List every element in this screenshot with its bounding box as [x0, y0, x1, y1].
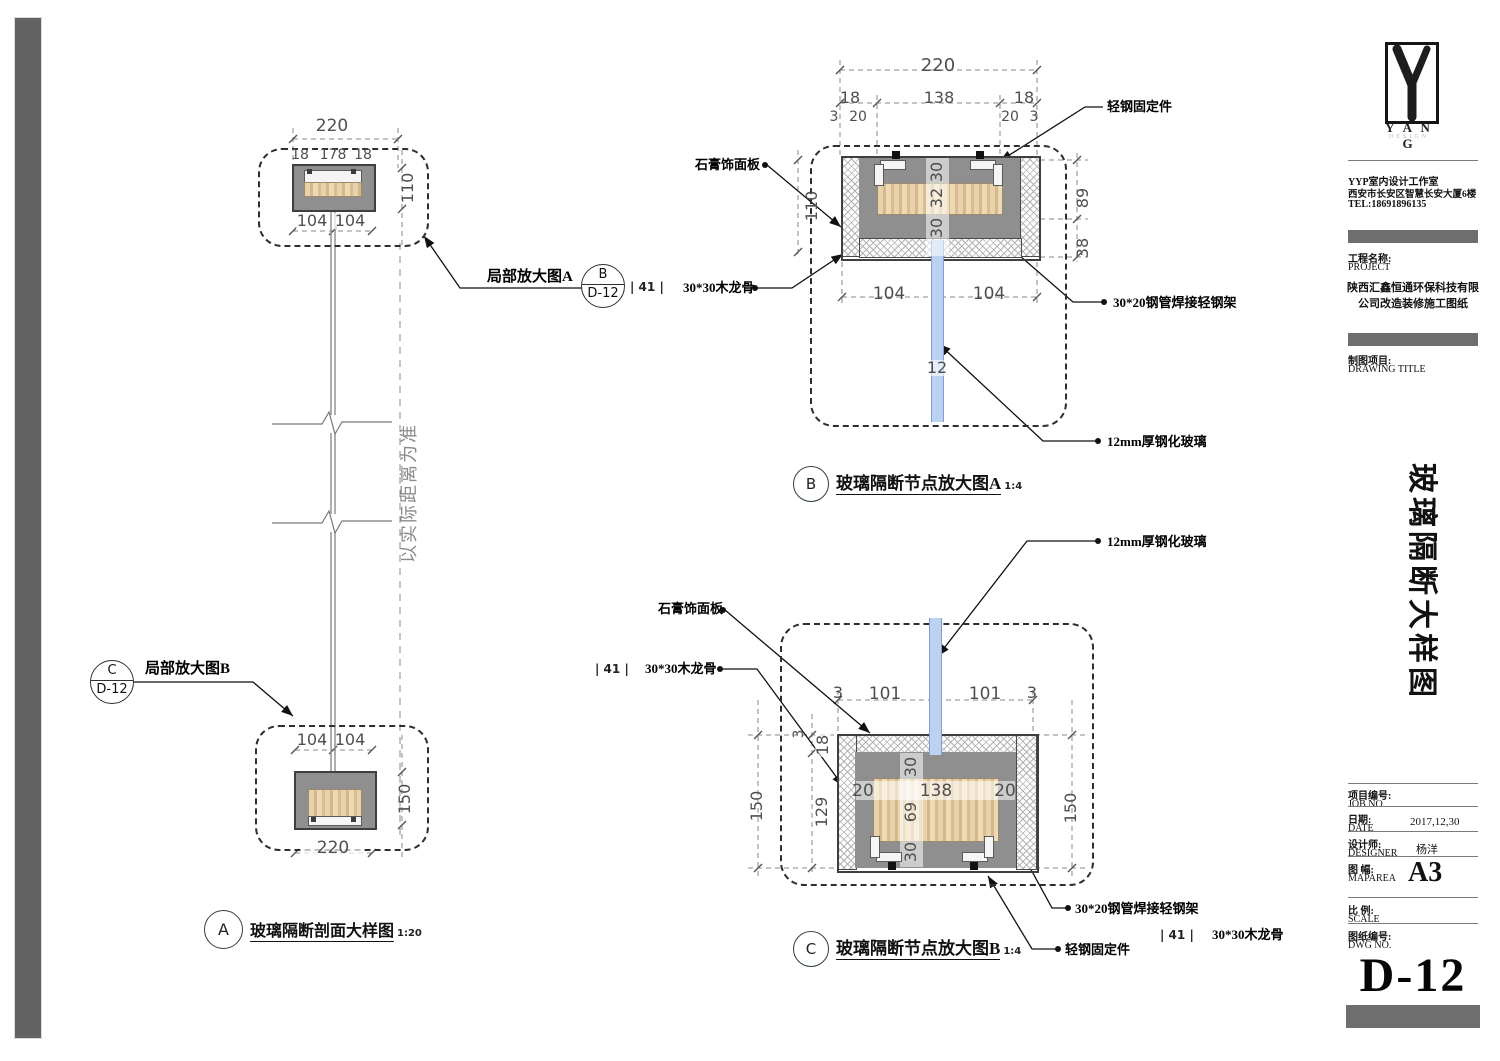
c-dim-150-left: 150: [749, 784, 765, 828]
b-label-steel-frame: 30*20钢管焊接轻钢架: [1113, 295, 1237, 310]
detail-b-title: 玻璃隔断节点放大图A1:4: [836, 469, 1022, 494]
detail-a-scale: 1:20: [397, 928, 422, 939]
a-dim-18-right: 18: [352, 148, 374, 162]
c-marker-right: | 41 |: [1160, 928, 1194, 942]
tb-row-line-5: [1348, 923, 1478, 924]
a-dim-220-bottom: 220: [303, 840, 363, 856]
c-fixing-anchor-left: [888, 862, 896, 870]
c-dim-101r: 101: [966, 686, 1004, 702]
a-dim-18-left: 18: [289, 148, 311, 162]
studio-tel: TEL:18691896135: [1348, 199, 1426, 210]
c-label-glass: 12mm厚钢化玻璃: [1107, 534, 1207, 549]
jobno-label-en: JOB NO.: [1348, 799, 1385, 810]
c-label-gypsum: 石膏饰面板: [658, 601, 723, 616]
detail-a-title-text: 玻璃隔断剖面大样图: [250, 923, 394, 942]
studio-address: 西安市长安区智慧长安大厦6楼: [1348, 186, 1476, 200]
tb-row-line-top: [1348, 783, 1478, 784]
detail-c-scale: 1:4: [1003, 946, 1021, 957]
detail-b-glass-panel: [931, 240, 944, 422]
b-dim-110: 110: [804, 186, 820, 226]
detail-a-title-circle: A: [204, 910, 243, 949]
a-dim-104-right: 104: [334, 213, 366, 229]
a-dim-220-top: 220: [302, 118, 362, 134]
date-value: 2017,12,30: [1410, 816, 1460, 828]
c-label-joist-left: 30*30木龙骨: [645, 661, 717, 676]
b-dim-3l: 3: [828, 110, 840, 124]
b-dim-138: 138: [918, 90, 960, 106]
detail-c-title: 玻璃隔断节点放大图B1:4: [836, 934, 1021, 959]
c-fixing-anchor-right: [970, 862, 978, 870]
detail-c-title-circle: C: [793, 931, 829, 967]
c-dim-20r: 20: [992, 783, 1018, 799]
b-dim-18l: 18: [838, 90, 862, 106]
b-label-fixing: 轻钢固定件: [1107, 99, 1172, 114]
b-dim-3r: 3: [1028, 110, 1040, 124]
b-label-gypsum: 石膏饰面板: [695, 157, 760, 172]
a-callout-top-label: 局部放大图A: [487, 270, 573, 285]
c-marker-left: | 41 |: [595, 662, 629, 676]
a-top-fixing-right: [351, 169, 356, 174]
c-dim-69: 69: [903, 797, 919, 827]
project-name-line1: 陕西汇鑫恒通环保科技有限: [1346, 280, 1480, 296]
c-dim-129: 129: [814, 790, 830, 834]
drawing-title-label-en: DRAWING TITLE: [1348, 364, 1426, 375]
a-dim-104-bot-right: 104: [334, 732, 366, 748]
c-label-steel-frame: 30*20钢管焊接轻钢架: [1075, 901, 1199, 916]
detail-c-letter: C: [806, 940, 816, 958]
b-dim-104r: 104: [972, 286, 1006, 302]
a-bottom-fixing-left: [311, 817, 316, 822]
a-dim-104-bot-left: 104: [296, 732, 328, 748]
bubble-detail-letter: C: [91, 661, 133, 680]
c-label-fixing: 轻钢固定件: [1065, 942, 1130, 957]
c-fixing-bracket-right-v: [984, 836, 994, 858]
titleblock-graybar-1: [1348, 230, 1478, 243]
c-dim-3-side: 3: [792, 724, 806, 744]
bubble-sheet-ref: D-12: [91, 680, 133, 699]
titleblock-divider-1: [1348, 160, 1478, 161]
drawing-sheet: 220 18 178 18 110 104 104 以实际距离为准 局部放大图A…: [0, 0, 1500, 1061]
b-dim-30-bottom: 30: [929, 215, 945, 241]
b-fixing-bracket-right-v: [993, 164, 1003, 186]
yang-logo: [1385, 42, 1439, 124]
b-dim-20l: 20: [847, 110, 869, 124]
titleblock-graybar-3: [1346, 1005, 1480, 1028]
a-callout-top-bubble: B D-12: [581, 264, 625, 308]
a-dim-110: 110: [400, 168, 416, 208]
a-top-wood-blocking: [304, 182, 362, 197]
a-bottom-wood-blocking: [308, 789, 362, 818]
detail-c-glass-panel: [929, 618, 942, 755]
b-dim-89: 89: [1075, 178, 1091, 218]
left-edge-bar: [14, 17, 42, 1039]
a-dim-104-left: 104: [296, 213, 328, 229]
detail-a-title: 玻璃隔断剖面大样图1:20: [250, 917, 422, 941]
yang-logo-sub: DESIGN: [1378, 134, 1440, 140]
c-dim-30-top: 30: [903, 754, 919, 780]
project-name-line2: 公司改造装修施工图纸: [1346, 296, 1480, 312]
c-dim-3r: 3: [1026, 686, 1038, 700]
b-label-joist: 30*30木龙骨: [683, 280, 755, 295]
maparea-label-en: MAPAREA: [1348, 873, 1396, 884]
c-dim-138: 138: [913, 783, 959, 799]
c-dim-101l: 101: [866, 686, 904, 702]
b-label-glass: 12mm厚钢化玻璃: [1107, 434, 1207, 449]
titleblock: Y A N G DESIGN YYP室内设计工作室 西安市长安区智慧长安大厦6楼…: [1340, 0, 1500, 1061]
tb-row-line-1: [1348, 806, 1478, 807]
c-dim-18: 18: [815, 733, 831, 757]
detail-a-letter: A: [218, 920, 229, 939]
a-top-fixing-left: [307, 169, 312, 174]
drawing-title-vertical: 玻璃隔断大样图: [1403, 462, 1447, 702]
b-dim-30-top: 30: [929, 159, 945, 185]
a-dim-150: 150: [397, 779, 413, 819]
detail-b-title-circle: B: [793, 466, 829, 502]
maparea-value: A3: [1408, 857, 1442, 889]
c-dim-20l: 20: [850, 783, 876, 799]
b-dim-38: 38: [1075, 228, 1091, 268]
b-dim-104l: 104: [872, 286, 906, 302]
project-label-en: PROJECT: [1348, 262, 1390, 273]
b-dim-18r: 18: [1012, 90, 1036, 106]
a-bottom-fixing-right: [351, 817, 356, 822]
designer-value: 杨洋: [1416, 841, 1438, 857]
detail-b-scale: 1:4: [1004, 481, 1022, 492]
c-label-joist-right: 30*30木龙骨: [1212, 927, 1284, 942]
bubble-sheet-ref: D-12: [582, 284, 624, 303]
b-fixing-anchor-right: [976, 151, 984, 159]
b-dim-32: 32: [929, 185, 945, 211]
tb-row-line-4: [1348, 897, 1478, 898]
b-dim-20r: 20: [999, 110, 1021, 124]
bubble-detail-letter: B: [582, 265, 624, 284]
b-dim-220: 220: [903, 58, 973, 74]
c-dim-30-bottom: 30: [903, 839, 919, 865]
c-dim-150-right: 150: [1063, 786, 1079, 830]
b-dim-12-glass: 12: [925, 360, 949, 376]
b-fixing-bracket-left-v: [874, 164, 884, 186]
detail-c-title-text: 玻璃隔断节点放大图B: [836, 939, 1000, 960]
c-fixing-bracket-left-v: [870, 836, 880, 858]
titleblock-graybar-2: [1348, 333, 1478, 346]
detail-b-letter: B: [806, 475, 816, 493]
c-dim-3l: 3: [832, 686, 844, 700]
detail-b-title-text: 玻璃隔断节点放大图A: [836, 474, 1001, 495]
yang-logo-y-icon: [1388, 45, 1436, 121]
a-callout-bottom-label: 局部放大图B: [145, 662, 230, 677]
a-note-actual-distance: 以实际距离为准: [395, 403, 421, 563]
a-callout-bottom-bubble: C D-12: [90, 660, 134, 704]
dwg-number: D-12: [1346, 948, 1480, 1003]
a-callout-top-marker: | 41 |: [630, 280, 664, 294]
project-name: 陕西汇鑫恒通环保科技有限 公司改造装修施工图纸: [1346, 280, 1480, 312]
a-dim-178: 178: [317, 148, 349, 162]
tb-row-line-2: [1348, 831, 1478, 832]
b-fixing-anchor-left: [892, 151, 900, 159]
